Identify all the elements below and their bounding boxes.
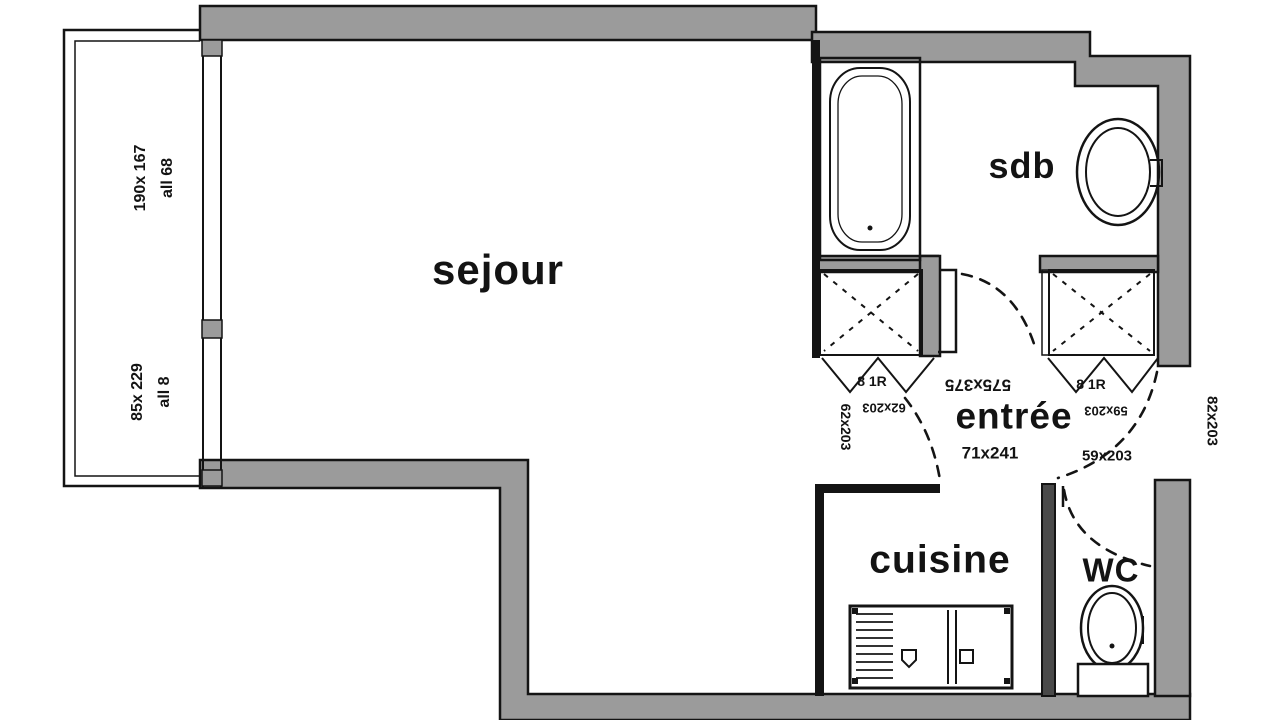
window-mullion-top (202, 40, 222, 56)
dim-left-closet-door-flipped: 62x203 (862, 402, 905, 415)
dim-entree: 71x241 (962, 445, 1019, 462)
room-label-sejour: sejour (432, 249, 564, 291)
wall-wc-left (1042, 484, 1055, 696)
floor-plan: sejour sdb entrée cuisine WC 190x 167 al… (0, 0, 1280, 720)
room-label-cuisine: cuisine (869, 541, 1010, 580)
drainboard-hatch (856, 614, 893, 678)
basin-drain-right (960, 650, 973, 663)
dim-right-closet-door-flipped: 59x203 (1084, 405, 1127, 418)
wall-top-right-sdb (812, 32, 1190, 366)
window-strip (202, 40, 222, 488)
wall-cuisine-top (815, 484, 940, 493)
dim-right-closet-door: 59x203 (1082, 449, 1132, 464)
toilet-tank (1078, 664, 1148, 696)
room-label-entree: entrée (955, 398, 1072, 435)
floor-plan-linework (0, 0, 1280, 720)
dim-left-closet-door-vertical: 62x203 (839, 404, 853, 451)
dim-balcony-lower: 85x 229 (130, 363, 146, 421)
wall-right-lower (1155, 480, 1190, 696)
room-label-wc: WC (1083, 554, 1140, 587)
interior-walls (812, 40, 1055, 696)
dim-sejour-flipped: 575x375 (945, 377, 1011, 394)
toilet (1078, 586, 1148, 696)
toilet-drain (1110, 644, 1115, 649)
wall-cuisine-left (815, 484, 824, 696)
note-left-closet: 8 1R (857, 374, 887, 388)
kitchen-sink-unit (850, 606, 1012, 688)
note-right-closet: 8 1R (1076, 377, 1106, 391)
closet-right (1042, 270, 1158, 392)
bathtub (820, 58, 920, 260)
dim-balcony-lower-note: all 8 (157, 376, 173, 407)
sejour-entree-door-arc (905, 398, 940, 480)
sdb-door-arc (962, 274, 1036, 350)
dim-balcony-upper-note: all 68 (160, 158, 176, 198)
dim-balcony-upper: 190x 167 (133, 145, 149, 212)
wall-top-sejour (200, 6, 816, 40)
room-label-sdb: sdb (988, 148, 1055, 184)
washbasin (1077, 119, 1162, 225)
dim-entry-door: 82x203 (1205, 396, 1220, 446)
window-mullion-middle (202, 320, 222, 338)
basin-drain-left (902, 650, 916, 667)
window-mullion-bottom (202, 470, 222, 486)
bathtub-drain (868, 226, 873, 231)
closet-right-jamb (1042, 270, 1049, 355)
